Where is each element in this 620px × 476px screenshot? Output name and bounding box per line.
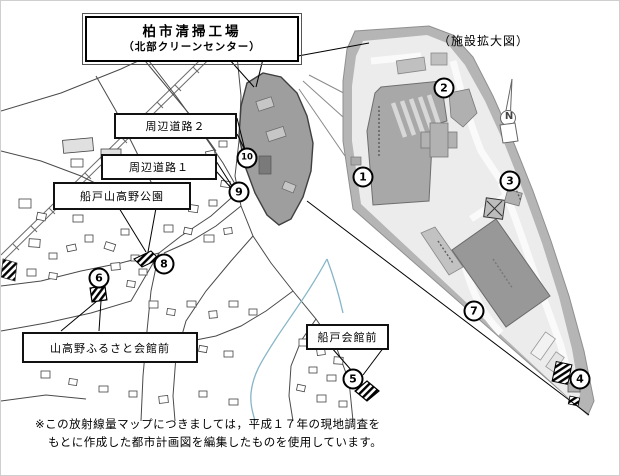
measurement-point-4: 4: [570, 369, 591, 390]
footnote-line2: もとに作成した都市計画図を編集したものを使用しています。: [35, 433, 382, 451]
label-funado-hall: 船戸会館前: [306, 324, 389, 350]
north-label: N: [502, 111, 516, 122]
label-park: 船戸山高野公園: [53, 182, 191, 210]
measurement-point-1: 1: [353, 167, 374, 188]
measurement-point-9: 9: [229, 182, 250, 203]
enlarged-facility-diagram: [343, 26, 594, 415]
measurement-point-10: 10: [237, 148, 258, 169]
pond: [1, 259, 17, 281]
measurement-point-2: 2: [434, 78, 455, 99]
label-yamakoya-hall: 山高野ふるさと会館前: [22, 332, 198, 363]
facility-title: 柏市清掃工場: [143, 24, 242, 40]
measurement-point-5: 5: [343, 369, 364, 390]
facility-subtitle: （北部クリーンセンター）: [123, 40, 260, 54]
measurement-point-6: 6: [89, 268, 110, 289]
yard-building: [431, 53, 447, 65]
measurement-point-3: 3: [500, 171, 521, 192]
measurement-point-7: 7: [464, 301, 485, 322]
label-road1: 周辺道路１: [101, 154, 217, 180]
radiation-map-page: 柏市清掃工場 （北部クリーンセンター） （施設拡大図） 周辺道路２ 周辺道路１ …: [0, 0, 620, 476]
footnote: ※この放射線量マップにつきましては，平成１７年の現地調査を もとに作成した都市計…: [35, 415, 382, 451]
enlarged-view-label: （施設拡大図）: [438, 32, 529, 49]
footnote-line1: ※この放射線量マップにつきましては，平成１７年の現地調査を: [35, 415, 382, 433]
label-road2: 周辺道路２: [114, 113, 237, 139]
measurement-point-8: 8: [154, 254, 175, 275]
facility-title-box: 柏市清掃工場 （北部クリーンセンター）: [85, 16, 299, 62]
map-canvas: [1, 1, 620, 476]
